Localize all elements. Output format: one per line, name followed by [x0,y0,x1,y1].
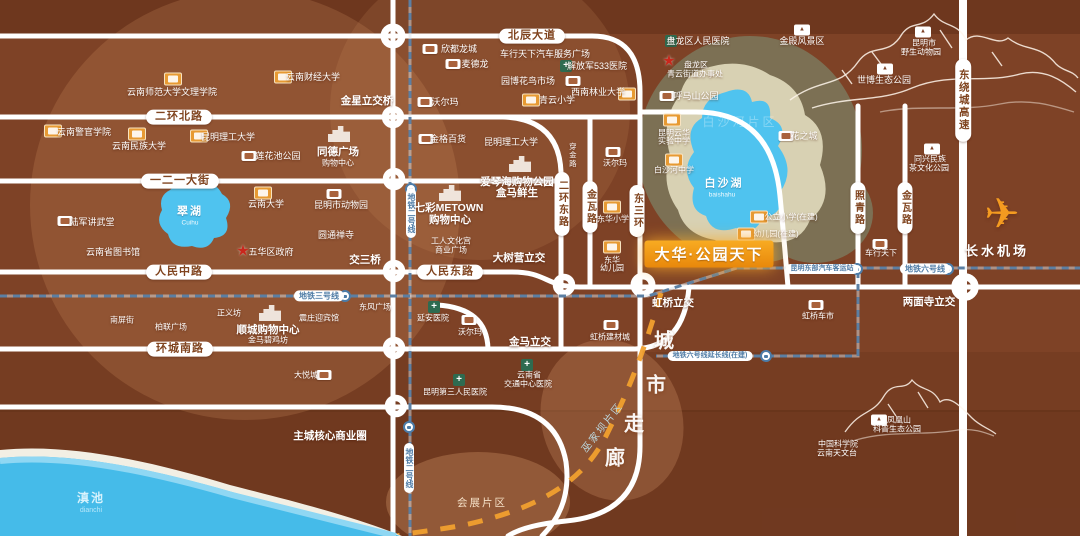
poi-qingyun-subdistrict-office: 青云街道办事处 [667,69,723,78]
east-bus-station-label: 昆明东部汽车客运站 [786,264,859,274]
poi-walmart-north: 沃尔玛 [431,97,458,107]
market-icon [604,320,619,330]
poi-yuanbo-flower-bird-market: 园博花鸟市场 [501,76,555,86]
government-star-icon: ★ [662,54,675,69]
poi-metown-mall: 购物中心 [429,214,471,226]
lake-label-baishahu: 白沙湖 [705,178,744,191]
park-icon [242,151,257,161]
poi-joy-city: 大悦城 [294,370,318,379]
poi-ynnu-arts-science: 云南师范大学文理学院 [127,87,217,97]
poi-kust: 昆明理工大学 [201,132,255,142]
school-icon [663,114,681,127]
school-icon [128,128,146,141]
road-label-jinwa-west: 金瓦路 [583,181,598,233]
poi-flower-city: 花之城 [790,131,817,141]
poi-workers-culture-palace: 工人文化宫 [431,236,471,245]
mountain-park-icon [794,25,810,36]
metro-line2-label-south: 地铁二号线 [404,443,414,493]
interchange-jinma: 金马立交 [509,336,551,348]
school-icon [603,201,621,214]
poi-changshui-airport: 长水机场 [965,245,1029,260]
road-label-east-ring-expressway: 东绕城高速 [955,59,971,142]
poi-business-plaza: 商业广场 [435,245,467,254]
corridor-char-zou: 走 [624,414,644,437]
poi-tongxing-minzu: 同兴民族 [914,154,946,163]
road-label-erhuan-east: 二环东路 [555,172,570,236]
lake-label-dianchi: 滇池 [77,492,105,506]
poi-yufe: 云南财经大学 [286,72,340,82]
poi-walmart-south: 沃尔玛 [458,327,482,336]
mountain-park-icon [915,27,931,38]
poi-yunnan-university: 云南大学 [248,199,284,209]
poi-donghua-primary: 东华小学 [597,214,629,223]
poi-wildlife-park: 野生动物园 [901,47,941,56]
poi-tea-culture-park: 茶文化公园 [909,163,949,172]
hospital-icon [428,301,440,313]
road-label-renmin-east: 人民东路 [417,265,483,280]
poi-yunnan-observatory: 云南天文台 [817,448,857,457]
interchange-jinxing: 金星立交桥 [341,95,394,107]
poi-humashan-park: 呼马山公园 [673,91,718,101]
road-label-renmin-middle: 人民中路 [146,265,212,280]
poi-yuantong-temple: 圆通禅寺 [318,230,354,240]
zoo-icon [327,189,342,199]
park-icon [660,91,675,101]
metro-line3-label: 地铁三号线 [294,290,344,301]
road-label-zhaoqing: 照青路 [851,182,866,234]
corridor-char-shi: 市 [646,375,666,398]
hospital-icon [453,374,465,386]
lake-label-baishahu-pinyin: baishahu [709,191,735,198]
poi-science-eco-park: 科普生态公园 [873,424,921,433]
poi-panlong-peoples-hospital: 盘龙区人民医院 [666,36,729,46]
poi-zhengyifang: 正义坊 [217,308,241,317]
airplane-icon: ✈ [984,193,1019,235]
mall-icon [418,97,433,107]
poi-yunnan-library: 云南省图书馆 [86,247,140,257]
poi-metro-market: 麦德龙 [461,59,488,69]
school-icon [737,228,755,241]
poi-pla-533-hospital: 解放军533医院 [567,61,627,71]
poi-cas: 中国科学院 [818,439,858,448]
lake-label-dianchi-pinyin: dianchi [80,507,102,515]
road-label-dongsanhuan: 东三环 [630,185,645,237]
road-label-beichen-avenue: 北辰大道 [499,29,565,44]
poi-lianhuachi-park: 莲花池公园 [255,151,300,161]
poi-chexing-tianxia: 车行天下 [865,248,897,257]
poi-hema-fresh: 盒马鲜生 [496,187,538,199]
mall-icon [446,59,461,69]
road-label-chuanjin: 穿金路 [568,142,577,168]
poi-tongde-mall: 购物中心 [322,158,354,167]
poi-fenghuangshan: 凤凰山 [887,415,911,424]
kunming-location-map: 大华·公园天下 北辰大道二环北路一二一大街人民中路人民东路环城南路二环东路金瓦路… [0,0,1080,536]
project-banner: 大华·公园天下 [645,241,774,268]
mall-icon [423,44,438,54]
main-city-core-business-circle: 主城核心商业圈 [293,430,367,442]
poi-baishahe-middle-school: 白沙河中学 [654,165,694,174]
mountain-park-icon [924,144,940,155]
poi-panlong-district: 盘龙区 [684,60,708,69]
metro-icon [403,421,415,433]
poi-public-primary-under-construction: 公立小学(在建) [764,212,817,221]
lake-label-cuihu-pinyin: Cuihu [182,219,199,226]
poi-zhenzhuang-guesthouse: 震庄迎宾馆 [299,313,339,322]
road-label-jinwa-east: 金瓦路 [898,182,913,234]
poi-hongqiao-building-materials: 虹桥建材城 [590,332,630,341]
road-label-erhuan-north: 二环北路 [146,110,212,125]
lake-label-cuihu: 翠湖 [177,206,203,219]
poi-dongfeng-square: 东风广场 [359,302,391,311]
road-label-huancheng-south: 环城南路 [147,342,213,357]
metro-line6-label: 地铁六号线 [900,263,950,274]
mall-icon [317,370,332,380]
mountain-park-icon [877,64,893,75]
poi-bolian-plaza: 柏联广场 [155,322,187,331]
interchange-liangmiansi: 两面寺立交 [903,296,956,308]
corridor-char-cheng: 城 [654,331,674,354]
school-icon [254,187,272,200]
interchange-dashuying: 大树营立交 [493,252,546,264]
poi-kunming-third-peoples-hospital: 昆明第三人民医院 [423,387,487,396]
metro-line6-extension-label: 地铁六号线延长线(在建) [668,351,753,361]
school-icon [164,73,182,86]
poi-jinge-department-store: 金格百货 [430,134,466,144]
poi-walmart-east: 沃尔玛 [603,158,627,167]
poi-yunhua-experimental-school: 实验中学 [658,136,690,145]
district-label-baishahe: 白沙河片区 [702,116,777,130]
poi-expo-eco-park: 世博生态公园 [857,75,911,85]
mall-icon [606,147,621,157]
poi-kunming-zoo: 昆明市动物园 [314,200,368,210]
poi-kust-campus2: 昆明理工大学 [484,137,538,147]
poi-hongqiao-auto-market: 虹桥车市 [802,311,834,320]
poi-golden-temple-scenic: 金殿风景区 [779,36,824,46]
poi-auto-service-plaza: 车行天下汽车服务广场 [500,49,590,59]
poi-yunnan-minzu-univ: 云南民族大学 [112,141,166,151]
road-label-121-street: 一二一大街 [141,174,219,189]
poi-swfu: 西南林业大学 [571,87,625,97]
poi-wuhua-district-gov: 五华区政府 [248,247,293,257]
interchange-jiaosanqiao: 交三桥 [349,254,381,266]
district-label-huizhan: 会展片区 [457,497,507,509]
school-icon [522,94,540,107]
metro-icon [760,350,772,362]
poi-yunnan-police-college: 云南警官学院 [57,127,111,137]
poi-shuncheng-mall: 顺城购物中心 [237,324,300,336]
poi-donghua-kindergarten: 幼儿园 [600,263,624,272]
hospital-icon [521,359,533,371]
poi-qingyun-primary: 青云小学 [539,95,575,105]
poi-traffic-central-hospital: 交通中心医院 [504,379,552,388]
interchange-hongqiao: 虹桥立交 [652,297,694,309]
school-icon [603,241,621,254]
poi-xindu-longcheng: 欣都龙城 [441,44,477,54]
poi-qicai-metown: 七彩METOWN [415,202,484,214]
poi-yunnan-province: 云南省 [517,370,541,379]
poi-nanping-street: 南屏街 [110,315,134,324]
poi-kunming-city: 昆明市 [912,38,936,47]
market-icon [566,76,581,86]
poi-jinma-biji-archways: 金马碧鸡坊 [248,335,288,344]
poi-tongde-plaza: 同德广场 [317,146,359,158]
market-icon [809,300,824,310]
corridor-char-lang: 廊 [605,448,625,471]
poi-army-academy: 陆军讲武堂 [69,217,114,227]
poi-kindergarten-under-construction: 幼儿园(在建) [753,229,798,238]
mall-icon [462,315,477,325]
poi-yanan-hospital: 延安医院 [417,313,449,322]
